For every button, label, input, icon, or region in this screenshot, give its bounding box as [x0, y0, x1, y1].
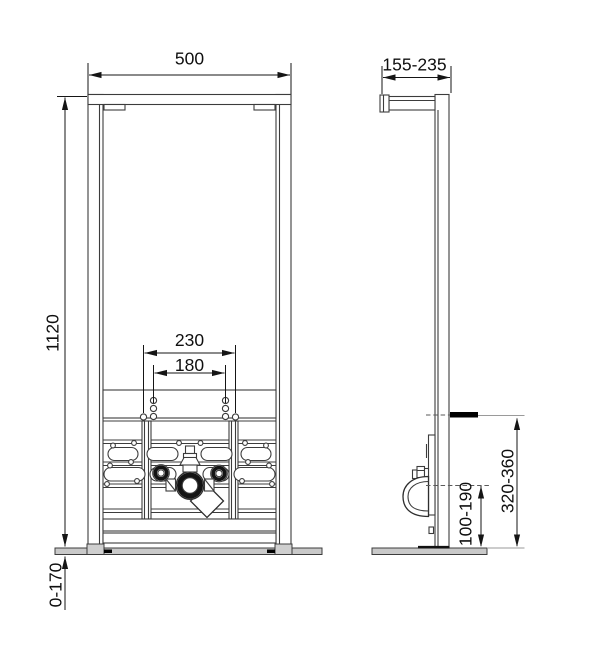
adjustment-slot — [147, 448, 178, 461]
arrowhead — [62, 98, 68, 111]
anchor-hole — [150, 405, 156, 411]
arrowhead — [62, 534, 68, 547]
frame-left-rail — [88, 95, 103, 549]
valve-cap — [186, 446, 195, 454]
fixing-screw — [429, 527, 434, 534]
mounting-plate — [429, 435, 436, 515]
installation-frame-drawing: 500 155-235 1120 0-170 — [0, 0, 601, 661]
plate-hole — [267, 463, 272, 468]
arrowhead — [438, 74, 451, 80]
side-rail — [435, 95, 449, 549]
arrowhead — [89, 72, 102, 78]
arrowhead — [145, 350, 158, 356]
brace-line — [103, 440, 276, 444]
anchor-hole — [232, 414, 238, 420]
plate-hole — [108, 463, 113, 468]
plate-hole — [264, 443, 269, 448]
frame-right-rail — [276, 95, 291, 549]
drain-height-label: 100-190 — [456, 482, 476, 546]
side-top-arm — [389, 97, 435, 111]
plate-hole — [135, 479, 140, 484]
wall-bracket-cap — [380, 95, 389, 112]
drain-collar-bore — [182, 478, 198, 494]
anchor-hole — [222, 413, 228, 419]
foot-anchor-right — [267, 550, 275, 554]
bolt-tip — [413, 470, 418, 479]
technical-drawing-page: 500 155-235 1120 0-170 — [0, 0, 601, 661]
lower-crossbar — [103, 519, 276, 531]
dimension-depth: 155-235 — [382, 55, 451, 95]
arrowhead — [514, 535, 520, 548]
plate-hole — [240, 479, 245, 484]
anchor-outer-label: 230 — [175, 330, 204, 350]
dimension-width: 500 — [88, 49, 291, 95]
arrowhead — [212, 370, 225, 376]
dimension-drain-height: 100-190 — [456, 482, 485, 547]
foot-range-label: 0-170 — [46, 562, 66, 607]
frame-top-rail — [88, 95, 291, 105]
filling-valve — [180, 446, 200, 472]
plate-hole — [132, 441, 137, 446]
plate-hole — [243, 441, 248, 446]
valve-body — [183, 465, 197, 472]
foot-anchor-left — [104, 550, 112, 554]
dimension-foot-range: 0-170 — [46, 557, 69, 611]
foot-left — [87, 544, 104, 555]
connection-bore — [158, 470, 164, 476]
anchor-hole — [150, 413, 156, 419]
arrowhead — [383, 74, 396, 80]
anchor-hole — [140, 414, 146, 420]
mounting-tab-right — [254, 105, 275, 111]
width-label: 500 — [175, 49, 204, 69]
anchor-hole — [222, 405, 228, 411]
plate-hole — [246, 460, 251, 465]
valve-flange — [180, 458, 200, 466]
wall-anchor-mark — [450, 412, 478, 418]
arrowhead — [478, 486, 484, 499]
arrowhead — [278, 72, 291, 78]
plate-hole — [198, 441, 203, 446]
plate-hole — [129, 460, 134, 465]
upper-crossbar — [103, 390, 276, 418]
valve-tbar — [184, 454, 197, 458]
foot-right — [275, 544, 292, 555]
arrowhead — [514, 418, 520, 430]
arrowhead — [222, 350, 235, 356]
bottom-brace — [103, 533, 276, 543]
plate-hole — [111, 443, 116, 448]
plate-hole — [105, 482, 110, 487]
depth-label: 155-235 — [382, 55, 446, 75]
arrowhead — [155, 370, 168, 376]
connection-bore — [216, 470, 222, 476]
connection-height-label: 320-360 — [498, 449, 518, 513]
plate-hole — [270, 482, 275, 487]
floor-plate-side — [372, 548, 487, 555]
height-label: 1120 — [43, 314, 63, 352]
adjustment-slot — [108, 448, 138, 461]
anchor-inner-label: 180 — [175, 355, 204, 375]
mounting-tab-left — [104, 105, 125, 111]
front-view — [55, 95, 322, 555]
plate-hole — [177, 441, 182, 446]
dimension-connection-height: 320-360 — [498, 418, 521, 547]
adjustment-slot — [241, 448, 271, 461]
adjustment-slot — [201, 448, 232, 461]
arrowhead — [478, 535, 484, 548]
brace-line — [103, 509, 276, 513]
dimension-height: 1120 — [43, 97, 88, 547]
